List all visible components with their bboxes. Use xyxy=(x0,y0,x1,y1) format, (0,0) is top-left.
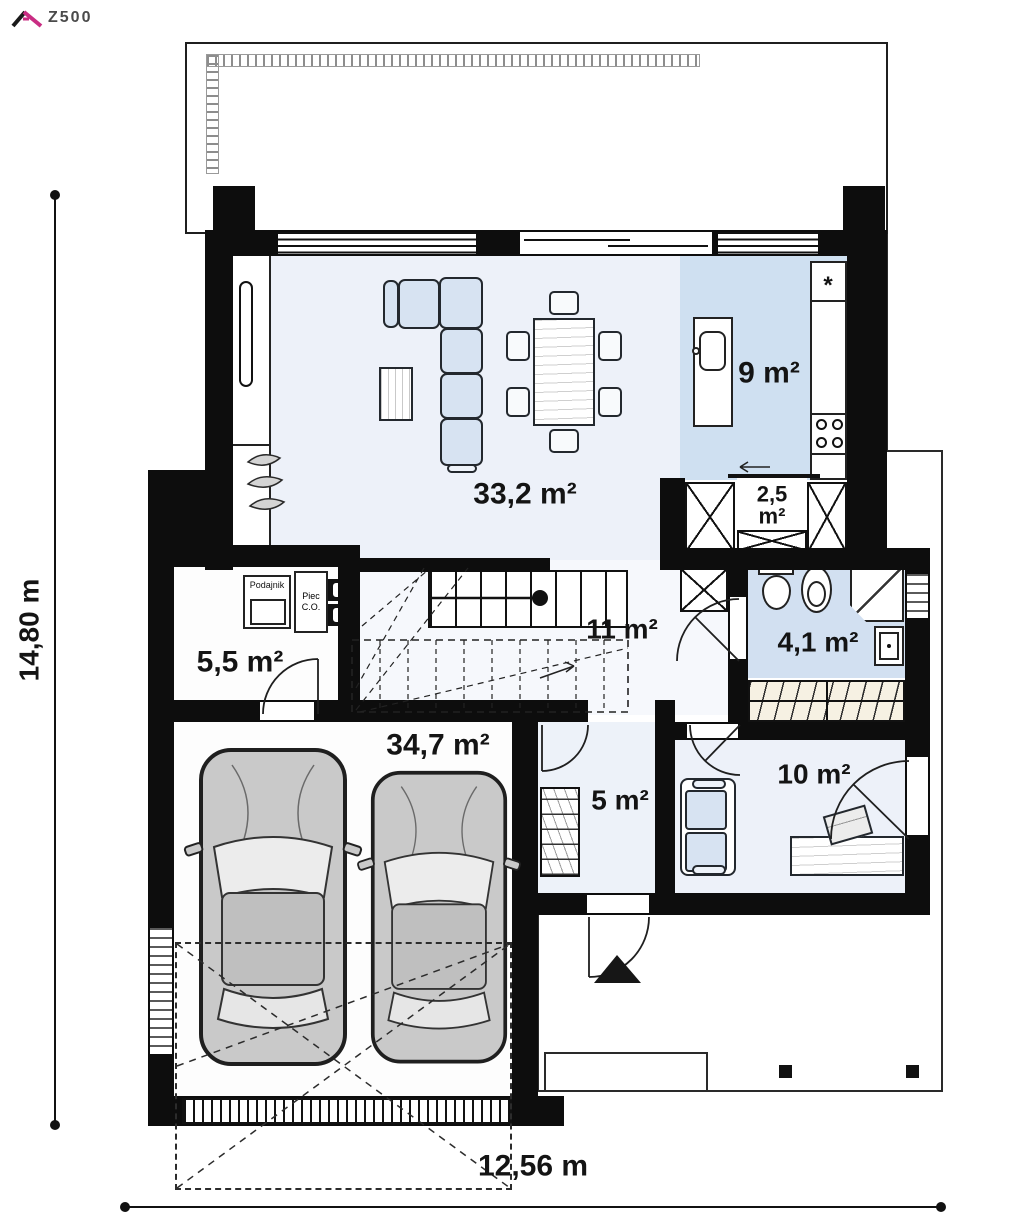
fridge-marker: * xyxy=(823,274,832,298)
dimension-dot-left xyxy=(120,1202,130,1212)
wall-kitchen-bath-band xyxy=(660,548,930,570)
floor-plan: Z500 xyxy=(0,0,1024,1231)
brand-logo: Z500 xyxy=(10,7,92,29)
closet-wardrobe xyxy=(748,680,905,722)
sliding-door-panel-line-2 xyxy=(608,245,708,247)
wall-pillar-top-left xyxy=(213,186,255,234)
cabinet-x-left xyxy=(685,482,735,552)
living-window xyxy=(278,232,476,254)
terrace-railing-top xyxy=(206,54,700,67)
office-sofa-cushion-1 xyxy=(685,790,727,830)
dining-chair-right-2 xyxy=(598,387,622,417)
feeder-inner xyxy=(250,599,286,625)
dining-chair-right-1 xyxy=(598,331,622,361)
room-label-living: 33,2 m² xyxy=(473,480,576,511)
sofa-seat-3 xyxy=(440,418,483,466)
kitchen-window xyxy=(718,232,818,254)
dimension-width-label: 12,56 m xyxy=(478,1152,588,1183)
room-label-technical: 5,5 m² xyxy=(197,648,284,679)
wall-left-of-pantry xyxy=(660,478,685,553)
technical-door-opening xyxy=(260,702,314,720)
sofa-armrest-left xyxy=(383,280,399,328)
living-ledge-divider xyxy=(233,444,271,446)
room-label-bathroom: 4,1 m² xyxy=(778,629,859,658)
kitchen-faucet xyxy=(692,347,700,355)
wall-entry-office-divider xyxy=(655,700,675,915)
washer-dot xyxy=(887,644,891,648)
entrance-marker-triangle xyxy=(594,955,641,983)
dining-chair-left-1 xyxy=(506,331,530,361)
wall-entry-top xyxy=(538,700,588,722)
sofa-seat-1 xyxy=(440,328,483,374)
porch-step xyxy=(544,1052,708,1092)
sliding-door-panel-line-1 xyxy=(524,239,630,241)
stove-burner-1 xyxy=(816,419,827,430)
dimension-height-label: 14,80 m xyxy=(16,579,45,682)
sofa-seat-2 xyxy=(440,373,483,419)
room-label-entry: 5 m² xyxy=(591,787,649,816)
room-label-pantry: 2,5 m² xyxy=(743,484,801,529)
wall-right-upper xyxy=(847,230,887,482)
room-label-kitchen: 9 m² xyxy=(738,359,800,390)
office-sofa-arm-top xyxy=(692,779,726,789)
wall-garage-right xyxy=(512,700,538,1124)
cabinet-x-right xyxy=(807,482,847,552)
bathroom-door-opening xyxy=(730,597,746,659)
room-label-hall: 11 m² xyxy=(586,616,658,645)
pantry-sliding-rail xyxy=(728,474,820,478)
dimension-dot-bottom xyxy=(50,1120,60,1130)
stove xyxy=(810,413,847,455)
dining-chair-top xyxy=(549,291,579,315)
porch-post-right xyxy=(906,1065,919,1078)
feeder-box: Podajnik xyxy=(243,575,291,629)
wall-closet-left xyxy=(728,680,748,723)
wall-closet-right xyxy=(905,680,930,722)
garage-maneuver-area xyxy=(175,942,512,1190)
boiler-box: Piec C.O. xyxy=(294,571,328,633)
boiler-label: Piec C.O. xyxy=(296,591,326,613)
wall-technical-top xyxy=(148,545,360,567)
office-door-opening xyxy=(907,757,928,835)
stove-burner-2 xyxy=(832,419,843,430)
sofa-seat-top xyxy=(398,279,440,329)
terrace xyxy=(185,42,888,234)
site-outline-right-jog xyxy=(886,450,943,452)
sofa-corner xyxy=(439,277,483,329)
porch-post-left xyxy=(779,1065,792,1078)
brand-name: Z500 xyxy=(48,9,92,27)
stove-burner-3 xyxy=(816,437,827,448)
terrace-railing-left xyxy=(206,54,219,174)
wall-office-bottom xyxy=(655,893,930,915)
stove-burner-4 xyxy=(832,437,843,448)
site-outline-right-lower xyxy=(941,450,943,1092)
cabinet-x-hall xyxy=(680,568,728,612)
room-label-garage: 34,7 m² xyxy=(386,731,489,762)
dimension-dot-right xyxy=(936,1202,946,1212)
kitchen-sink xyxy=(699,331,726,371)
dimension-line-vertical xyxy=(54,195,56,1125)
office-top-door-opening xyxy=(687,724,738,738)
bathroom-window xyxy=(907,574,928,618)
office-desk xyxy=(790,836,904,876)
dining-chair-bottom xyxy=(549,429,579,453)
office-sofa-arm-bottom xyxy=(692,865,726,875)
feeder-label: Podajnik xyxy=(245,580,289,590)
front-door-opening xyxy=(587,895,649,913)
front-door-arc xyxy=(589,917,649,977)
dimension-dot-top xyxy=(50,190,60,200)
dimension-line-horizontal xyxy=(125,1206,941,1208)
basin-inner xyxy=(807,581,826,607)
wall-pillar-top-right xyxy=(843,186,885,234)
sofa-foot xyxy=(447,464,477,473)
wall-right-kitchen-lower xyxy=(847,480,887,548)
entry-wardrobe xyxy=(540,787,580,877)
wall-stair-technical-divider xyxy=(338,567,360,700)
room-label-office: 10 m² xyxy=(777,761,850,790)
counter-fridge-divider xyxy=(810,300,847,302)
dining-table xyxy=(533,318,595,426)
wall-living-stairs-band xyxy=(338,558,550,572)
dining-chair-left-2 xyxy=(506,387,530,417)
garage-window xyxy=(150,928,172,1054)
coffee-table xyxy=(379,367,413,421)
wall-garage-top xyxy=(148,700,538,722)
roof-logo-icon xyxy=(10,7,44,29)
terrace-sliding-door xyxy=(520,232,712,254)
radiator xyxy=(239,281,253,387)
